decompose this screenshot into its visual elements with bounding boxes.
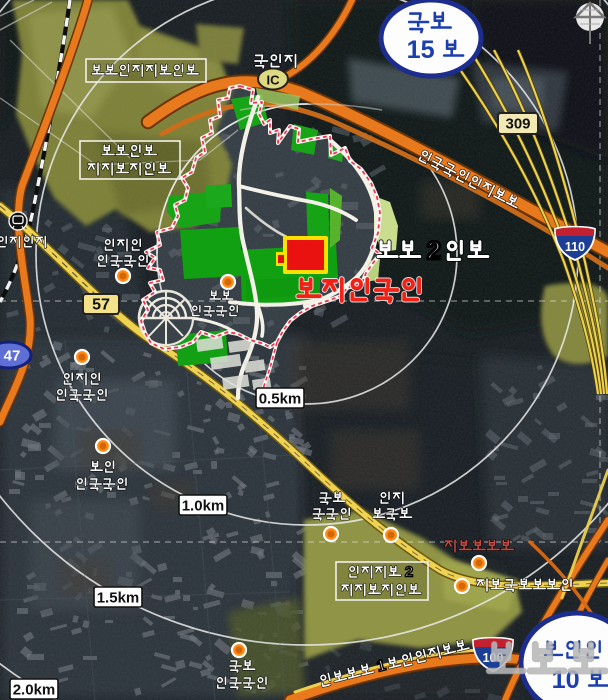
svg-text:2: 2 (405, 564, 413, 581)
svg-text:2.0km: 2.0km (13, 682, 56, 699)
svg-text:2: 2 (427, 237, 441, 265)
svg-text:309: 309 (505, 116, 530, 133)
svg-text:110: 110 (565, 240, 585, 254)
svg-text:15: 15 (407, 36, 435, 64)
svg-text:57: 57 (92, 297, 110, 314)
svg-text:1.0km: 1.0km (182, 498, 225, 515)
svg-text:47: 47 (4, 348, 21, 365)
svg-text:IC: IC (267, 73, 281, 88)
svg-text:1.5km: 1.5km (97, 590, 140, 607)
svg-text:0.5km: 0.5km (259, 391, 302, 408)
